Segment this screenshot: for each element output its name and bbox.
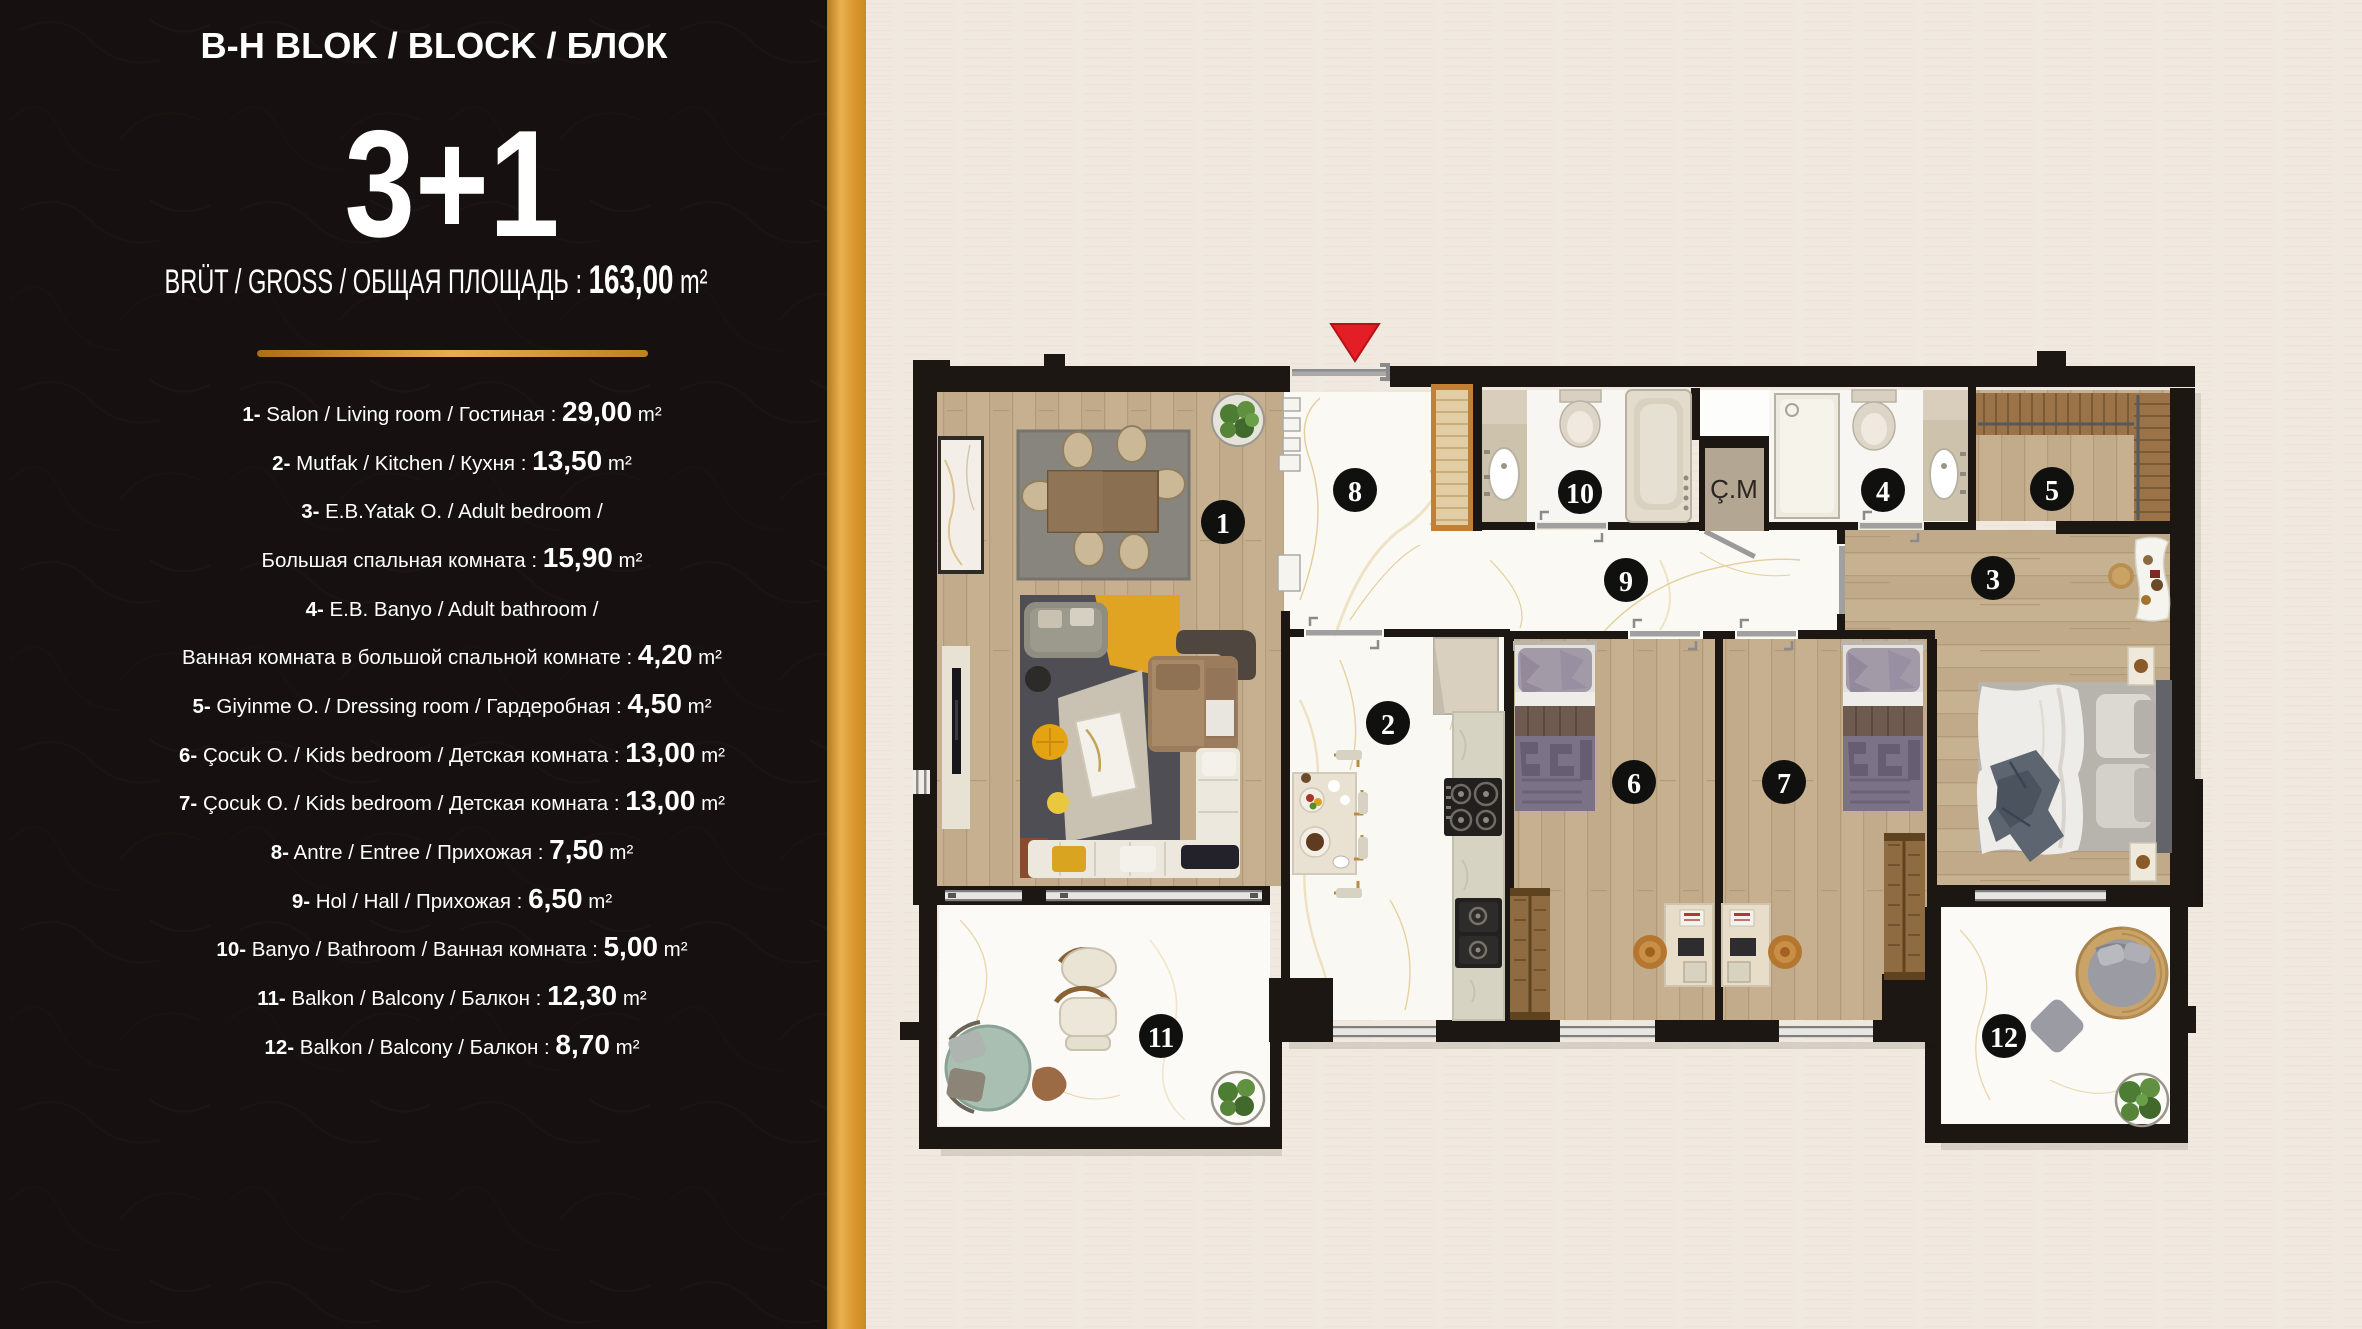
svg-text:3+1: 3+1 xyxy=(345,99,560,269)
svg-text:B-H BLOK / BLOCK / БЛОК: B-H BLOK / BLOCK / БЛОК xyxy=(201,25,669,66)
svg-text:3- E.B.Yatak O. / Adult bedroo: 3- E.B.Yatak O. / Adult bedroom / xyxy=(301,500,603,523)
svg-text:1: 1 xyxy=(1216,509,1230,540)
svg-text:11: 11 xyxy=(1148,1023,1174,1054)
svg-text:12: 12 xyxy=(1990,1023,2018,1054)
svg-text:7: 7 xyxy=(1777,769,1791,800)
svg-text:BRÜT / GROSS / ОБЩАЯ ПЛОЩАДЬ :: BRÜT / GROSS / ОБЩАЯ ПЛОЩАДЬ : 163,00 m² xyxy=(165,258,708,302)
svg-text:10: 10 xyxy=(1566,479,1594,510)
svg-text:5: 5 xyxy=(2045,476,2059,507)
svg-text:Ç.M: Ç.M xyxy=(1710,474,1758,504)
svg-text:9: 9 xyxy=(1619,567,1633,598)
svg-text:2: 2 xyxy=(1381,710,1395,741)
svg-text:6: 6 xyxy=(1627,769,1641,800)
svg-text:4: 4 xyxy=(1876,477,1890,508)
svg-text:3: 3 xyxy=(1986,565,2000,596)
svg-text:8: 8 xyxy=(1348,477,1362,508)
svg-text:4- E.B. Banyo / Adult bathroom: 4- E.B. Banyo / Adult bathroom / xyxy=(306,598,599,621)
